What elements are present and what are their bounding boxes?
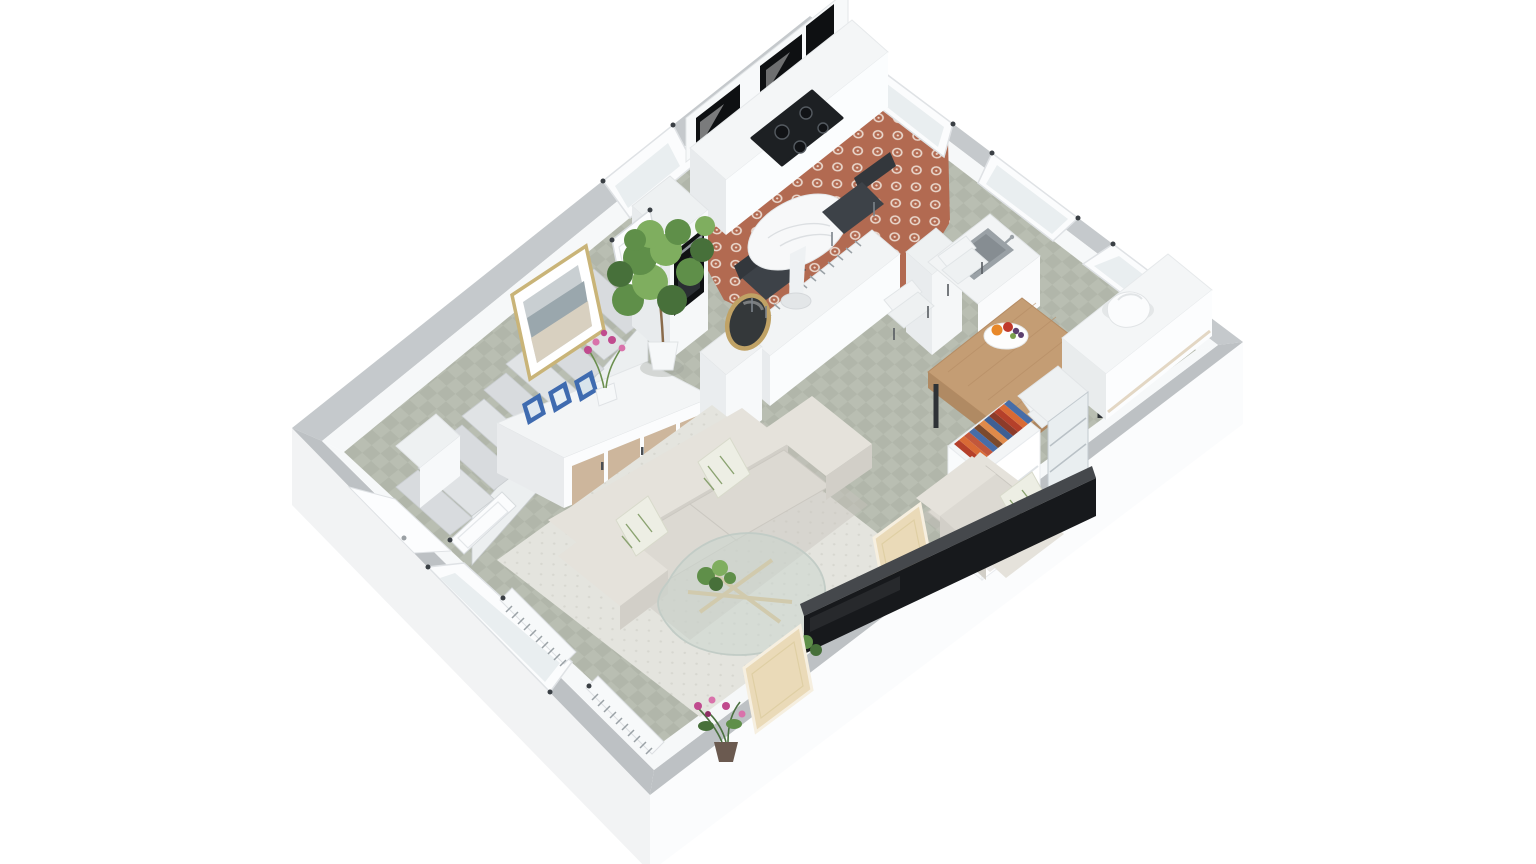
burner <box>818 123 828 133</box>
burner <box>794 141 806 153</box>
burner <box>775 125 789 139</box>
door-handle <box>402 536 407 541</box>
radiator-valve <box>587 684 592 689</box>
burner <box>800 107 812 119</box>
door-hinge <box>448 538 453 543</box>
plant-pot <box>648 342 678 370</box>
floorplan-render <box>0 0 1536 864</box>
floorplan-screenshot <box>0 0 1536 864</box>
radiator-valve <box>501 596 506 601</box>
